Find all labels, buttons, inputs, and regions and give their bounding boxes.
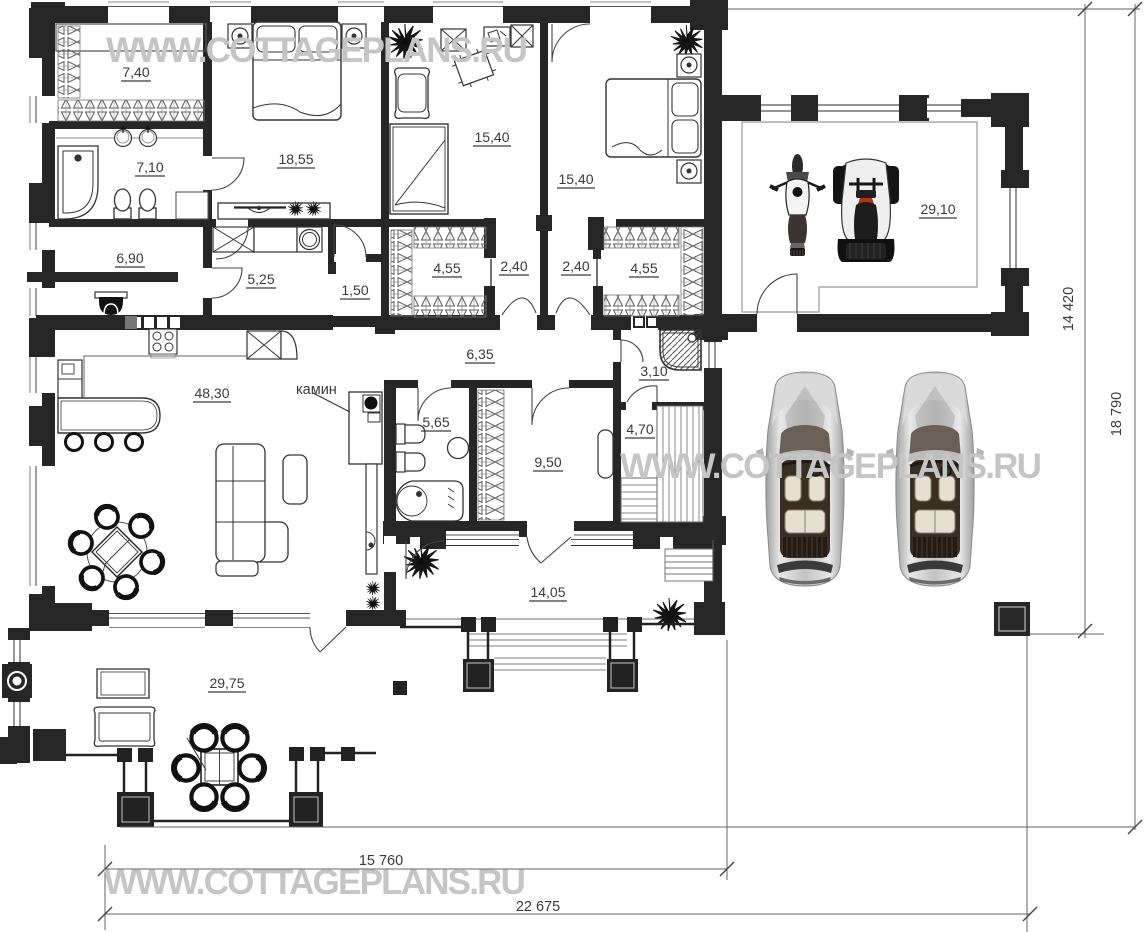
svg-text:48,30: 48,30 [194,385,229,401]
svg-text:14,05: 14,05 [530,584,565,600]
svg-text:6,35: 6,35 [466,346,493,362]
svg-text:2,40: 2,40 [500,258,527,274]
svg-text:15,40: 15,40 [558,171,593,187]
svg-text:1,50: 1,50 [341,282,368,298]
svg-text:4,55: 4,55 [630,260,657,276]
svg-text:15,40: 15,40 [474,129,509,145]
svg-text:4,70: 4,70 [626,421,653,437]
svg-text:3,10: 3,10 [640,363,667,379]
svg-text:5,65: 5,65 [422,414,449,430]
svg-text:9,50: 9,50 [534,454,561,470]
svg-text:18,55: 18,55 [278,151,313,167]
svg-text:18 790: 18 790 [1109,392,1125,436]
svg-text:5,25: 5,25 [247,271,274,287]
svg-text:WWW.COTTAGEPLANS.RU: WWW.COTTAGEPLANS.RU [620,447,1041,486]
svg-text:WWW.COTTAGEPLANS.RU: WWW.COTTAGEPLANS.RU [106,31,527,70]
svg-text:2,40: 2,40 [562,258,589,274]
svg-text:29,10: 29,10 [920,201,955,217]
svg-text:7,10: 7,10 [136,159,163,175]
svg-text:14 420: 14 420 [1061,287,1077,331]
svg-text:WWW.COTTAGEPLANS.RU: WWW.COTTAGEPLANS.RU [104,863,525,902]
svg-text:29,75: 29,75 [209,675,244,691]
svg-text:6,90: 6,90 [116,250,143,266]
svg-text:4,55: 4,55 [433,260,460,276]
svg-text:камин: камин [296,382,337,398]
